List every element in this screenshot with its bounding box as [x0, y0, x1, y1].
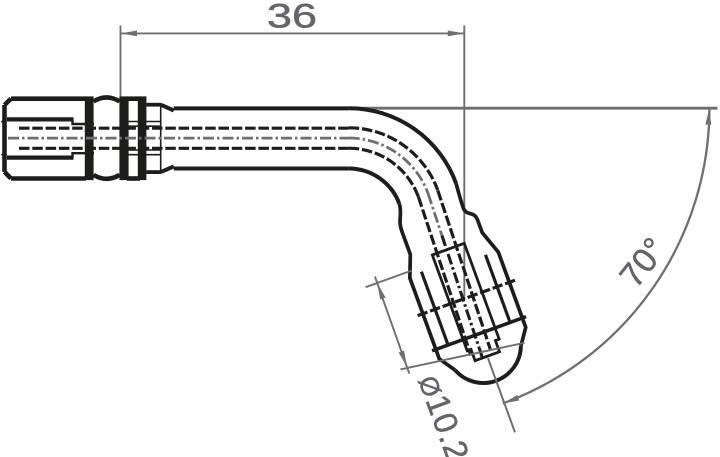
svg-text:36: 36 [267, 0, 317, 35]
